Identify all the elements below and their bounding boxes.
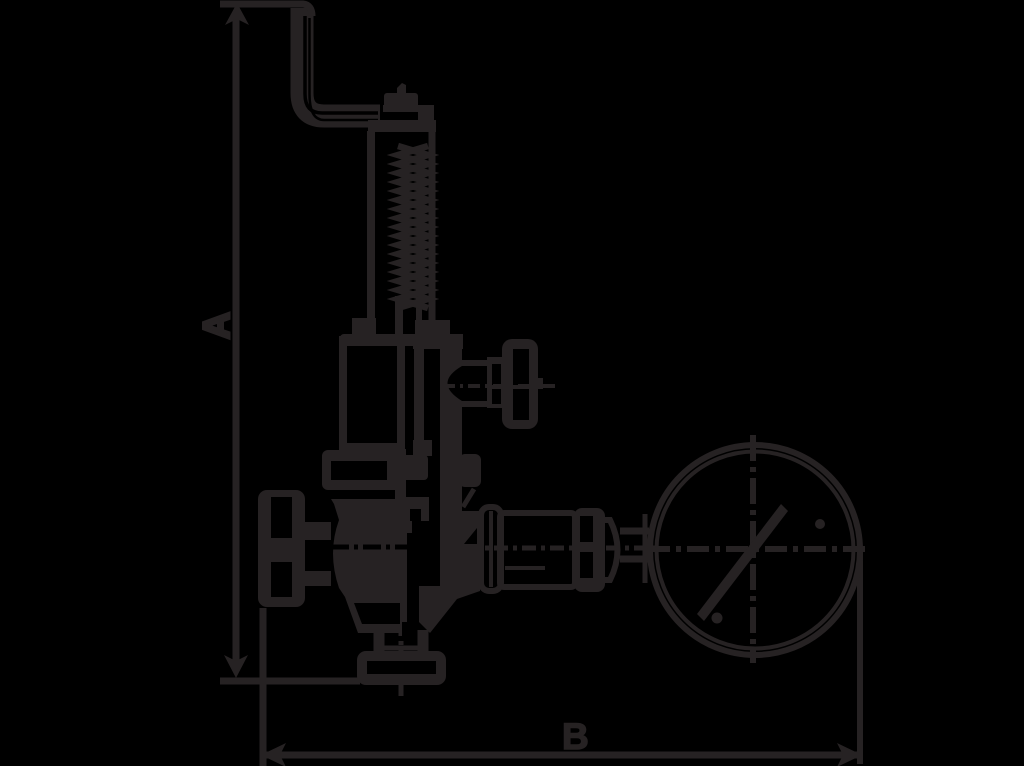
svg-text:B: B xyxy=(562,716,589,757)
svg-text:A: A xyxy=(196,312,237,339)
